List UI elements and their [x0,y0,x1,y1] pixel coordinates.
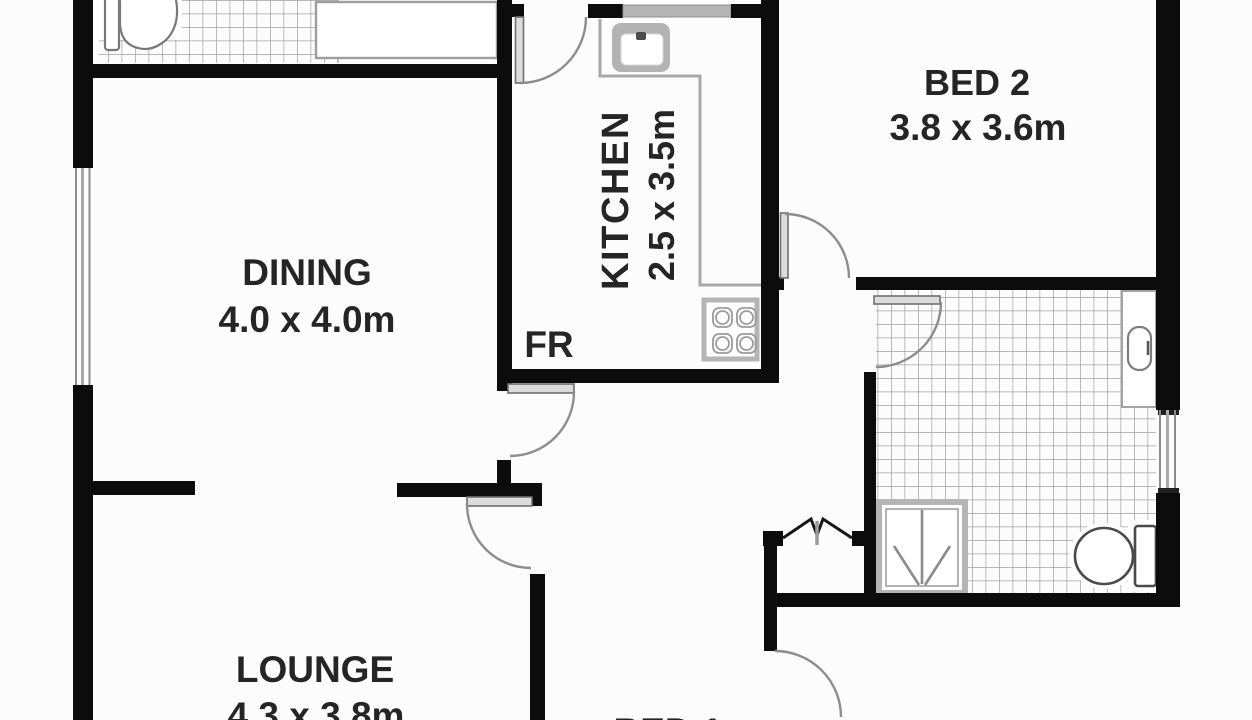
svg-text:2.5 x 3.5m: 2.5 x 3.5m [641,109,682,281]
svg-text:LOUNGE: LOUNGE [236,649,394,690]
svg-text:BED 2: BED 2 [924,62,1030,103]
svg-text:DINING: DINING [242,252,372,293]
svg-text:3.8 x 3.6m: 3.8 x 3.6m [890,107,1067,148]
svg-text:BED 1: BED 1 [614,711,723,720]
svg-text:KITCHEN: KITCHEN [595,110,637,290]
svg-text:4.3 x 3.8m: 4.3 x 3.8m [228,695,405,720]
svg-text:4.0 x 4.0m: 4.0 x 4.0m [219,299,396,340]
svg-text:FR: FR [524,324,573,365]
